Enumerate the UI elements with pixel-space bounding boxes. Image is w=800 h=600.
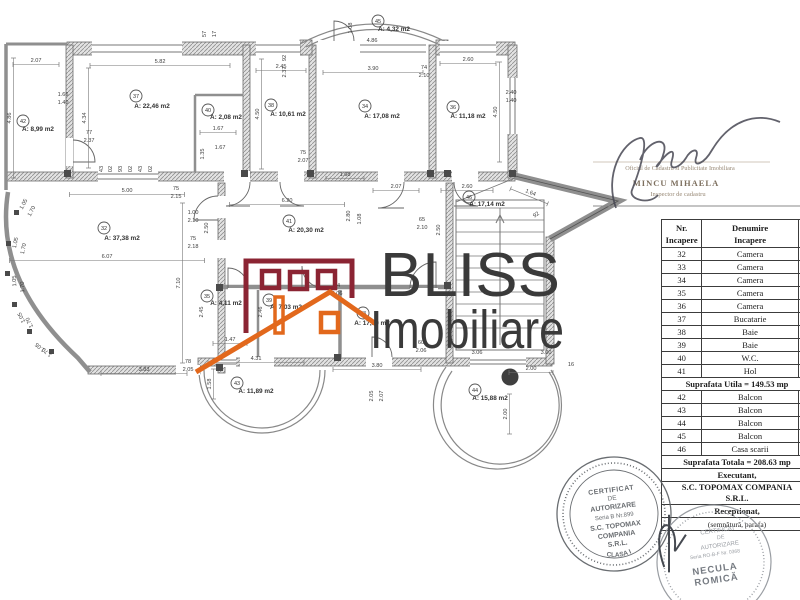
svg-text:5.00: 5.00	[122, 188, 133, 194]
room-number-cell: 42	[662, 391, 702, 404]
room-name-cell: Camera	[702, 287, 799, 300]
dimension-label: 93	[118, 166, 124, 172]
dimension-label: 74	[421, 65, 427, 71]
dimension-label: 2.50	[436, 225, 442, 236]
svg-text:92: 92	[282, 55, 288, 61]
dimension-label: 2.60	[440, 57, 496, 66]
room-name-cell: Camera	[702, 248, 799, 261]
svg-text:6.07: 6.07	[102, 254, 113, 260]
room-name-cell: Camera	[702, 274, 799, 287]
svg-text:1.05: 1.05	[19, 198, 29, 210]
svg-text:02: 02	[108, 166, 114, 172]
room-label-37: 37A: 22,46 m2	[130, 90, 170, 110]
room-name-cell: Baie	[702, 339, 799, 352]
executant-row: Executant,	[662, 469, 800, 482]
svg-text:02: 02	[128, 166, 134, 172]
svg-text:3.90: 3.90	[368, 66, 379, 72]
dimension-label: 2.45	[256, 64, 306, 73]
dimension-label: 2.07	[373, 184, 419, 193]
dimension-label: 2.46	[258, 307, 264, 318]
dimension-label: 2.05	[369, 391, 375, 402]
room-area: A: 17,08 m2	[364, 113, 400, 120]
dimension-label: 1.70	[25, 316, 35, 328]
room-number-cell: 40	[662, 352, 702, 365]
table-row: 37Bucatarie	[662, 313, 800, 326]
dimension-label: 17	[212, 31, 218, 37]
svg-text:74: 74	[421, 65, 427, 71]
room-number: 34	[362, 104, 368, 110]
room-number: 44	[472, 388, 478, 394]
svg-text:2.10: 2.10	[188, 218, 199, 224]
dimension-label: 1.40	[506, 98, 517, 104]
svg-text:2.05: 2.05	[183, 367, 194, 373]
svg-text:16: 16	[568, 362, 574, 368]
dimension-label: 2.50	[204, 223, 210, 234]
room-number: 42	[20, 119, 26, 125]
dimension-label: 2.37	[282, 67, 288, 78]
room-area: A: 8,99 m2	[22, 126, 54, 133]
dimension-label: 2.40	[506, 90, 517, 96]
executant-label-cell: Executant,	[662, 469, 800, 482]
svg-text:5.82: 5.82	[155, 59, 166, 65]
executant-name-cell: S.C. TOPOMAX COMPANIAS.R.L.	[662, 482, 800, 505]
svg-text:6.20: 6.20	[282, 198, 293, 204]
logo-text-imobiliare: Imobiliare	[370, 300, 564, 360]
room-area: A: 22,46 m2	[134, 103, 170, 110]
dimension-label: 75	[190, 236, 196, 242]
dimension-label: 1.66	[58, 92, 69, 98]
svg-text:65: 65	[419, 217, 425, 223]
room-number-cell: 41	[662, 365, 702, 378]
room-number: 37	[133, 94, 139, 100]
room-number-cell: 44	[662, 417, 702, 430]
svg-text:1.05: 1.05	[12, 237, 20, 249]
svg-text:4.31: 4.31	[251, 356, 262, 362]
dimension-label: 1.00	[188, 210, 199, 216]
room-table-body: 32Camera33Camera34Camera35Camera36Camera…	[662, 248, 800, 531]
dimension-label: 77	[86, 130, 92, 136]
dimension-label: 6.07	[10, 254, 205, 263]
svg-text:2.10: 2.10	[419, 73, 430, 79]
svg-text:92: 92	[532, 211, 541, 219]
room-area: A: 11,89 m2	[238, 388, 274, 395]
dimension-label: 02	[108, 166, 114, 172]
room-label-38: 38A: 10,61 m2	[265, 99, 306, 118]
room-number: 36	[450, 105, 456, 111]
room-number: 41	[286, 219, 292, 225]
dimension-label: 1.08	[357, 214, 363, 225]
room-label-41: 41A: 20,30 m2	[283, 215, 324, 234]
table-row: 40W.C.	[662, 352, 800, 365]
table-row: 46Casa scarii	[662, 443, 800, 456]
svg-text:78: 78	[185, 359, 191, 365]
total-row: Suprafata Totala = 208.63 mp	[662, 456, 800, 469]
dimension-label: 2.07	[298, 158, 309, 164]
room-number: 43	[234, 381, 240, 387]
svg-text:2.60: 2.60	[463, 57, 474, 63]
dimension-label: 1.70	[20, 281, 26, 292]
svg-text:43: 43	[99, 166, 105, 172]
room-number: 45	[375, 19, 381, 25]
dimension-label: 65	[419, 217, 425, 223]
svg-text:43: 43	[138, 166, 144, 172]
table-header-row: Nr. Incapere Denumire Incapere	[662, 220, 800, 248]
dimension-label: 2.10	[419, 73, 430, 79]
room-label-32: 32A: 37,38 m2	[98, 222, 140, 242]
room-label-43: 43A: 11,89 m2	[231, 377, 274, 395]
svg-text:1.66: 1.66	[58, 92, 69, 98]
room-name-cell: Casa scarii	[702, 443, 799, 456]
svg-text:3.83: 3.83	[139, 367, 150, 373]
dimension-label: 2.05	[183, 367, 194, 373]
svg-text:2.37: 2.37	[84, 138, 95, 144]
room-number-cell: 43	[662, 404, 702, 417]
room-area: A: 4,11 m2	[210, 300, 242, 307]
signature-note-row: (semnătură, parafa)	[662, 518, 800, 531]
bliss-logo: BLISS Imobiliare	[196, 241, 564, 372]
svg-text:2.07: 2.07	[298, 158, 309, 164]
table-row: 44Balcon	[662, 417, 800, 430]
dimension-label: 43	[138, 166, 144, 172]
table-row: 45Balcon	[662, 430, 800, 443]
svg-text:2.00: 2.00	[526, 366, 537, 372]
svg-text:75: 75	[190, 236, 196, 242]
dimension-label: 2.45	[199, 307, 205, 318]
dimension-label: 92	[282, 55, 288, 61]
table-row: 36Camera	[662, 300, 800, 313]
svg-text:1.40: 1.40	[58, 100, 69, 106]
dimension-label: 1.40	[58, 100, 69, 106]
room-number-cell: 39	[662, 339, 702, 352]
dimension-label: 2.37	[84, 138, 95, 144]
svg-text:2.40: 2.40	[506, 90, 517, 96]
balcony-column	[502, 369, 519, 386]
room-area: A: 10,61 m2	[270, 111, 306, 118]
svg-text:2.07: 2.07	[31, 58, 42, 64]
svg-text:02: 02	[148, 166, 154, 172]
room-area: A: 2,08 m2	[210, 114, 242, 121]
dimension-label: 5.00	[70, 188, 185, 197]
dimension-label: 92	[532, 211, 541, 219]
svg-text:2.46: 2.46	[258, 307, 264, 318]
svg-text:1.67: 1.67	[215, 145, 226, 151]
dimension-label: 78	[185, 359, 191, 365]
room-name-cell: Baie	[702, 326, 799, 339]
dimension-label: 1.05	[12, 237, 20, 249]
svg-text:1.64: 1.64	[524, 188, 536, 198]
dimension-label: 4.50	[493, 62, 502, 162]
dimension-label: 1.70	[20, 243, 28, 255]
dimension-label: 1.70	[27, 205, 37, 217]
table-row: 35Camera	[662, 287, 800, 300]
inspector-office: Oficiul de Cadastru si Publicitate Imobi…	[625, 165, 735, 172]
dimension-label: 57	[202, 31, 208, 37]
svg-text:2.05: 2.05	[369, 391, 375, 402]
svg-text:4.86: 4.86	[367, 38, 378, 44]
logo-chimney	[275, 297, 283, 333]
room-number-cell: 32	[662, 248, 702, 261]
svg-text:2.18: 2.18	[188, 244, 199, 250]
svg-text:4.50: 4.50	[255, 109, 261, 120]
room-area: A: 11,18 m2	[450, 113, 486, 120]
room-name-cell: Balcon	[702, 404, 799, 417]
svg-text:1.35: 1.35	[200, 149, 206, 160]
svg-text:2.60: 2.60	[462, 184, 473, 190]
dimension-label: 43	[99, 166, 105, 172]
dimension-label: 1.05	[12, 275, 18, 286]
dimension-label: 5.82	[90, 59, 230, 68]
header-denumire-incapere: Denumire Incapere	[702, 220, 799, 248]
svg-text:2.50: 2.50	[436, 225, 442, 236]
subtotal-row: Suprafata Utila = 149.53 mp	[662, 378, 800, 391]
svg-text:4.50: 4.50	[493, 107, 499, 118]
inspector-role: Inspector de cadastru	[650, 191, 706, 198]
room-area: A: 17,14 m2	[469, 201, 505, 208]
dimension-label: 2.10	[188, 218, 199, 224]
svg-text:2.80: 2.80	[346, 211, 352, 222]
dimension-label: 1.08	[348, 23, 354, 34]
table-row: 42Balcon	[662, 391, 800, 404]
room-number-cell: 35	[662, 287, 702, 300]
room-name-cell: Camera	[702, 261, 799, 274]
svg-text:2.07: 2.07	[391, 184, 402, 190]
svg-text:75: 75	[300, 150, 306, 156]
svg-text:1.70: 1.70	[20, 243, 28, 255]
dimension-label: 2.10	[417, 225, 428, 231]
room-number-cell: 45	[662, 430, 702, 443]
room-area: A: 37,38 m2	[104, 235, 140, 242]
company-row: S.C. TOPOMAX COMPANIAS.R.L.	[662, 482, 800, 505]
dimension-label: 1.58	[207, 369, 216, 399]
room-name-cell: Balcon	[702, 391, 799, 404]
svg-text:1.58: 1.58	[207, 379, 213, 390]
table-row: 38Baie	[662, 326, 800, 339]
svg-text:1.70: 1.70	[27, 205, 37, 217]
table-row: 33Camera	[662, 261, 800, 274]
svg-text:4.34: 4.34	[82, 113, 88, 124]
room-name-cell: Camera	[702, 300, 799, 313]
dimension-label: 4.34	[82, 68, 91, 168]
room-label-40: 40A: 2,08 m2	[202, 104, 242, 121]
room-area: A: 4,32 m2	[378, 26, 410, 33]
dimension-label: 7.10	[176, 203, 185, 363]
svg-text:1.70: 1.70	[20, 281, 26, 292]
room-label-44: 44A: 15,88 m2	[469, 384, 508, 402]
room-label-42: 42A: 8,99 m2	[17, 115, 54, 133]
dimension-label: 2.18	[188, 244, 199, 250]
room-label-36: 36A: 11,18 m2	[447, 101, 486, 120]
svg-text:75: 75	[173, 186, 179, 192]
dimension-label: 2.07	[13, 58, 59, 67]
room-name-cell: Balcon	[702, 430, 799, 443]
receptionat-note-cell: (semnătură, parafa)	[662, 518, 800, 531]
header-nr-incapere: Nr. Incapere	[662, 220, 702, 248]
dimension-label: 4.50	[255, 59, 264, 169]
subtotal-cell: Suprafata Utila = 149.53 mp	[662, 378, 800, 391]
svg-text:17: 17	[212, 31, 218, 37]
table-row: 32Camera	[662, 248, 800, 261]
inspector-name: MINCU MIHAELA	[633, 178, 719, 188]
room-number-cell: 46	[662, 443, 702, 456]
svg-text:1.08: 1.08	[348, 23, 354, 34]
dimension-label: 2.07	[379, 391, 385, 402]
table-row: 34Camera	[662, 274, 800, 287]
room-number: 38	[268, 103, 274, 109]
room-number-cell: 37	[662, 313, 702, 326]
total-cell: Suprafata Totala = 208.63 mp	[662, 456, 800, 469]
svg-text:77: 77	[86, 130, 92, 136]
room-name-cell: Bucatarie	[702, 313, 799, 326]
svg-text:1.67: 1.67	[213, 126, 224, 132]
svg-text:93: 93	[118, 166, 124, 172]
svg-text:1.47: 1.47	[225, 337, 236, 343]
dimension-label: 75	[300, 150, 306, 156]
svg-text:1.70: 1.70	[25, 316, 35, 328]
room-number: 32	[101, 226, 107, 232]
svg-text:2.10: 2.10	[417, 225, 428, 231]
dimension-label: 4.86	[367, 38, 378, 44]
dimension-label: 2.15	[171, 194, 182, 200]
room-name-cell: Balcon	[702, 417, 799, 430]
svg-text:3.80: 3.80	[372, 363, 383, 369]
dimension-label: 75	[173, 186, 179, 192]
svg-text:2.37: 2.37	[282, 67, 288, 78]
svg-text:1.08: 1.08	[357, 214, 363, 225]
room-table: Nr. Incapere Denumire Incapere 32Camera3…	[661, 219, 800, 531]
room-label-45: 45A: 4,32 m2	[372, 15, 410, 33]
dimension-label: 1.35	[200, 149, 206, 160]
dimension-label: 2.80	[346, 211, 352, 222]
dimension-label: 4.86	[7, 58, 16, 178]
room-number-cell: 34	[662, 274, 702, 287]
table-row: 43Balcon	[662, 404, 800, 417]
room-area: A: 20,30 m2	[288, 227, 324, 234]
dimension-label: 3.90	[323, 66, 423, 75]
dimension-label: 1.67	[200, 126, 236, 135]
room-label-34: 34A: 17,08 m2	[359, 100, 400, 120]
receptionat-label-cell: Receptionat,	[662, 505, 800, 518]
logo-window	[321, 313, 338, 332]
room-number-cell: 33	[662, 261, 702, 274]
receptionat-row: Receptionat,	[662, 505, 800, 518]
table-row: 41Hol	[662, 365, 800, 378]
scanned-floorplan-document: 2.075.822.453.902.604.861.0857174.861.66…	[0, 0, 800, 600]
room-number: 35	[204, 294, 210, 300]
svg-text:57: 57	[202, 31, 208, 37]
svg-text:1.40: 1.40	[506, 98, 517, 104]
dimension-label: 02	[148, 166, 154, 172]
dimension-label: 02	[128, 166, 134, 172]
svg-text:4.86: 4.86	[7, 113, 13, 124]
svg-text:7.10: 7.10	[176, 278, 182, 289]
svg-text:2.07: 2.07	[379, 391, 385, 402]
table-row: 39Baie	[662, 339, 800, 352]
svg-text:2.50: 2.50	[204, 223, 210, 234]
svg-text:2.15: 2.15	[171, 194, 182, 200]
svg-text:1.68: 1.68	[340, 172, 351, 178]
dimension-label: 1.67	[215, 145, 226, 151]
svg-text:2.00: 2.00	[503, 409, 509, 420]
room-name-cell: Hol	[702, 365, 799, 378]
room-area: A: 15,88 m2	[472, 395, 508, 402]
svg-text:1.05: 1.05	[12, 275, 18, 286]
room-number-cell: 36	[662, 300, 702, 313]
room-number-cell: 38	[662, 326, 702, 339]
svg-text:2.45: 2.45	[199, 307, 205, 318]
svg-text:1.00: 1.00	[188, 210, 199, 216]
dimension-label: 16	[568, 362, 574, 368]
dimension-label: 1.05	[19, 198, 29, 210]
room-name-cell: W.C.	[702, 352, 799, 365]
inspector-stamp: Oficiul de Cadastru si Publicitate Imobi…	[593, 118, 800, 208]
